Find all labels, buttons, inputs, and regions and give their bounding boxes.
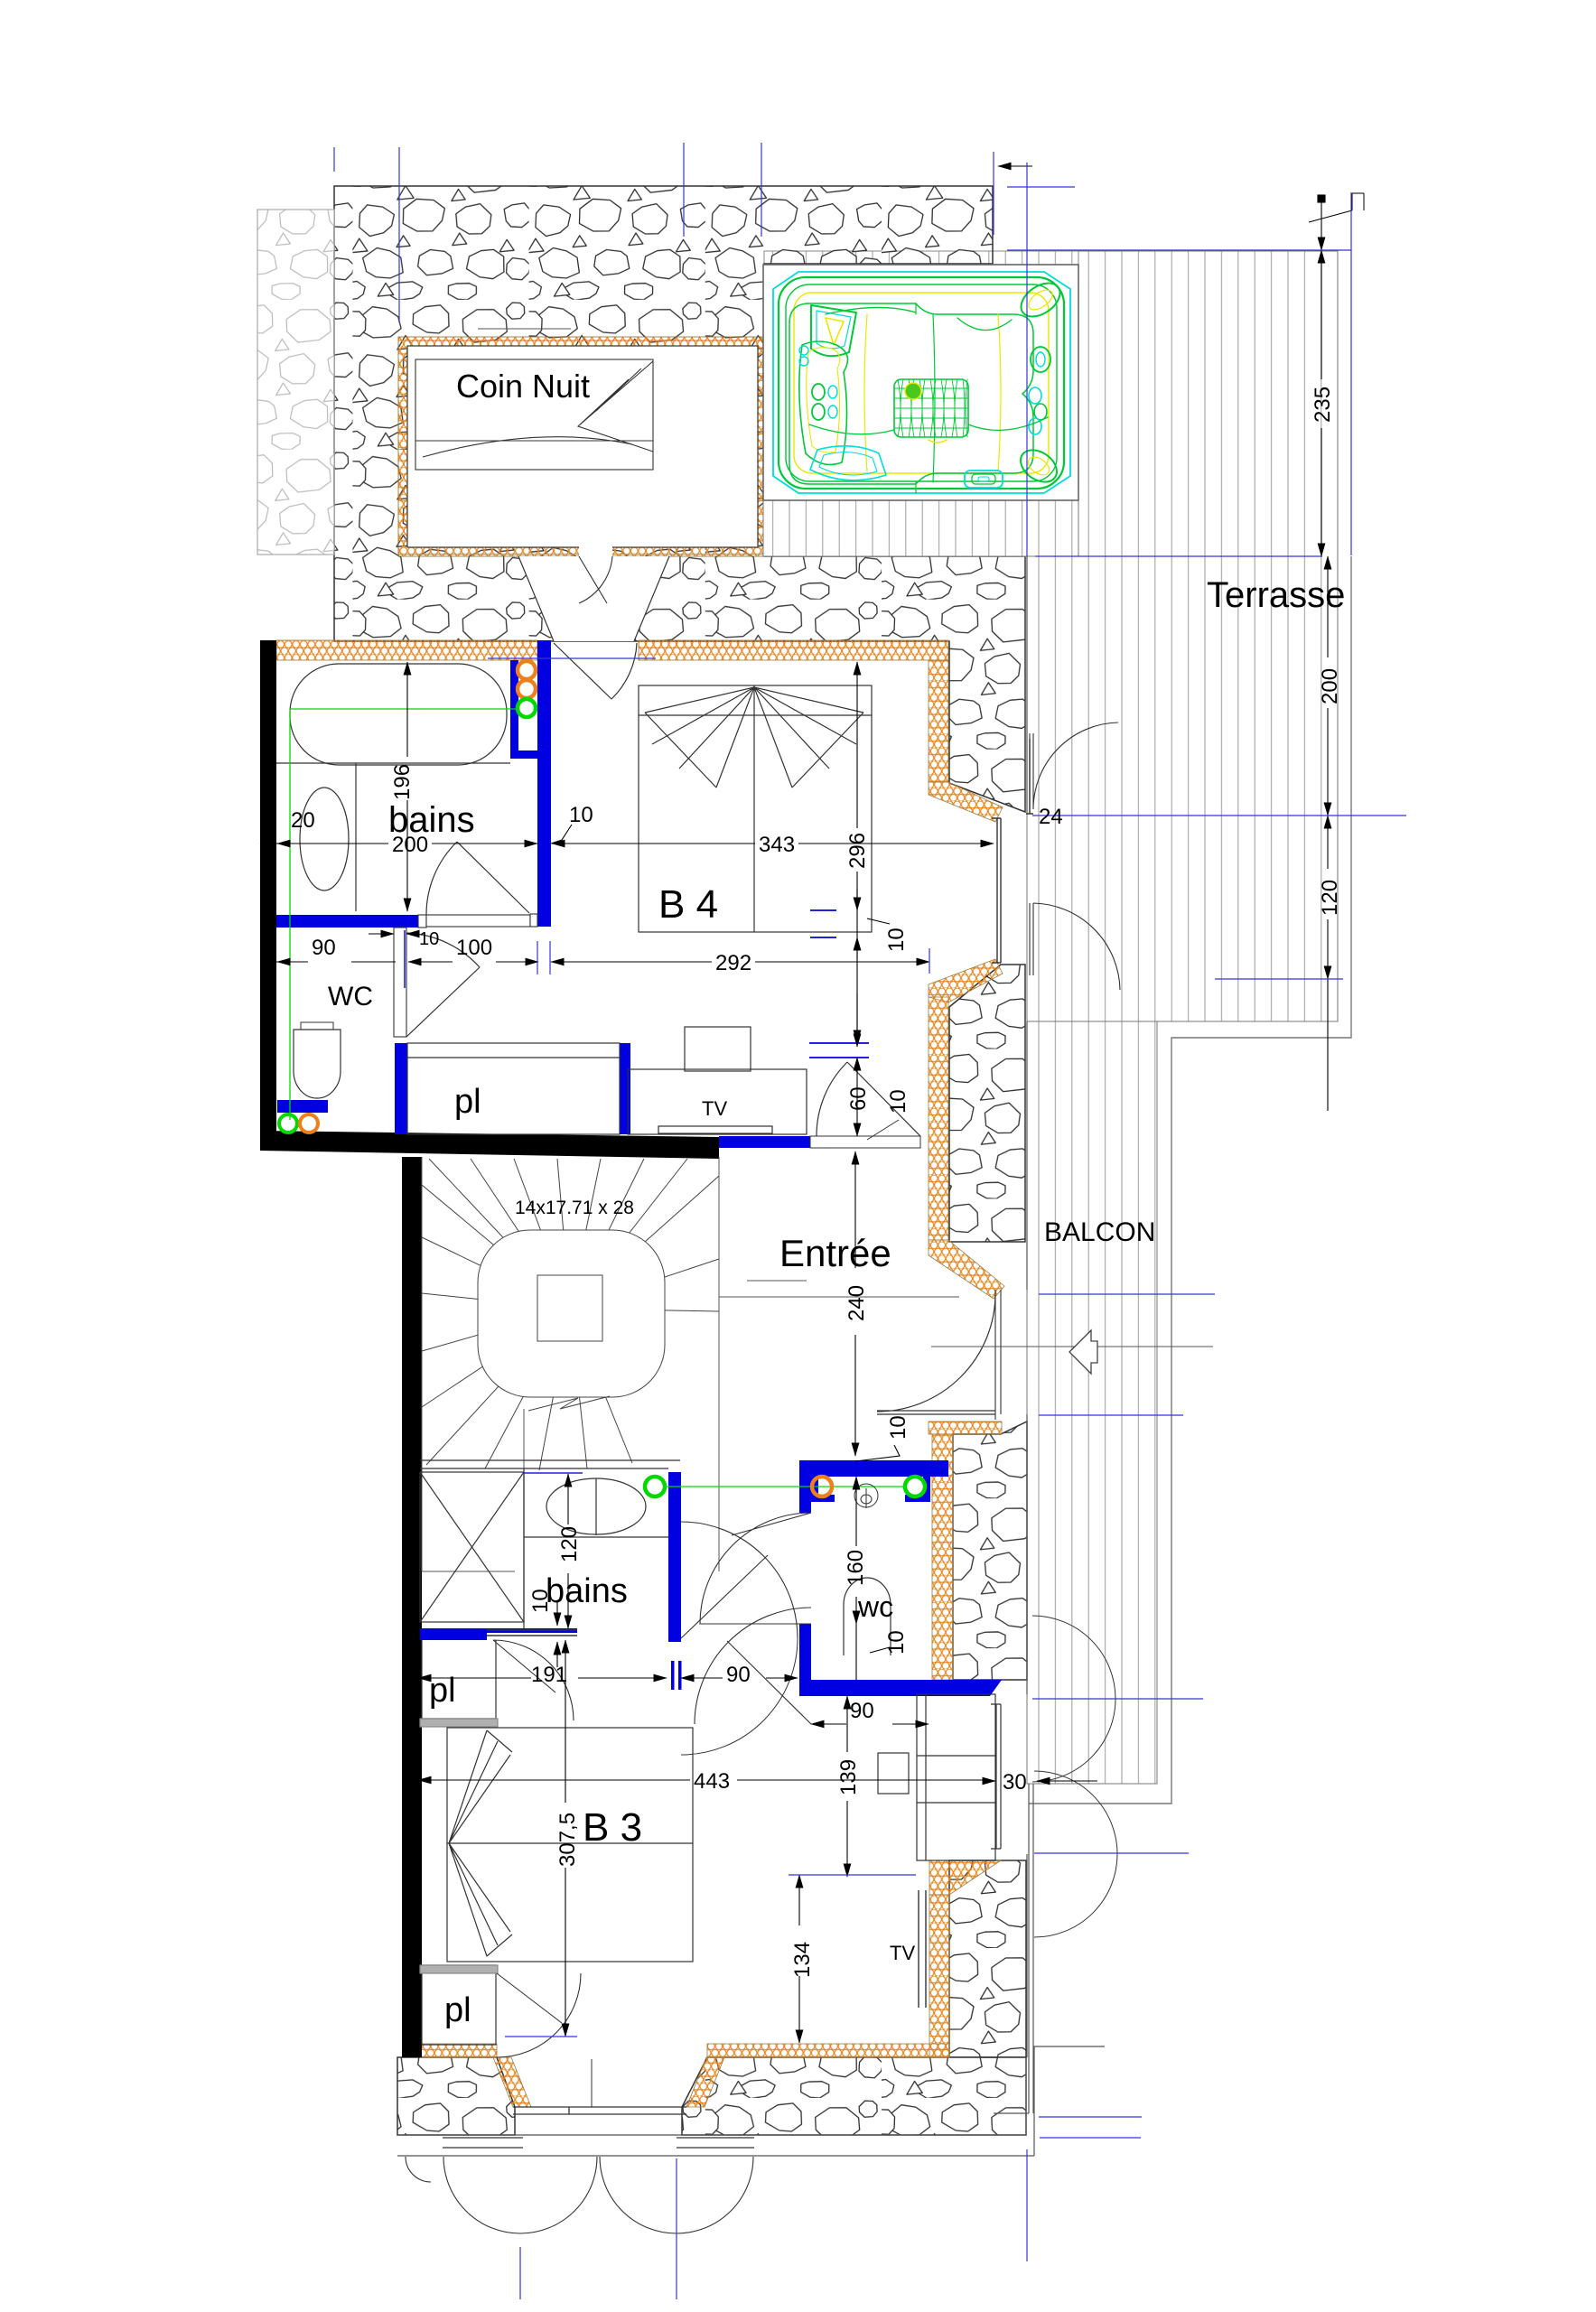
svg-text:TV: TV [890,1942,915,1964]
svg-text:B 3: B 3 [583,1805,642,1850]
svg-text:160: 160 [844,1550,868,1586]
svg-text:10: 10 [884,928,909,952]
svg-text:Entrée: Entrée [779,1232,891,1274]
svg-text:20: 20 [291,808,315,833]
svg-text:pl: pl [444,1991,471,2029]
svg-text:343: 343 [759,833,795,857]
svg-text:90: 90 [312,936,336,960]
svg-text:10: 10 [569,803,593,827]
svg-text:10: 10 [884,1630,909,1655]
svg-text:10: 10 [419,929,439,949]
svg-text:60: 60 [846,1086,871,1111]
svg-text:B 4: B 4 [658,882,718,927]
svg-text:Coin Nuit: Coin Nuit [456,368,590,405]
svg-text:wc: wc [857,1590,893,1623]
svg-text:90: 90 [726,1663,751,1687]
svg-text:196: 196 [390,764,415,800]
svg-text:24: 24 [1039,805,1063,829]
svg-text:292: 292 [715,951,751,975]
svg-text:10: 10 [886,1415,910,1440]
svg-text:BALCON: BALCON [1044,1217,1155,1247]
svg-text:120: 120 [1318,880,1342,916]
svg-text:WC: WC [328,982,373,1011]
svg-text:134: 134 [790,1942,815,1978]
svg-text:443: 443 [694,1769,730,1794]
svg-text:14x17.71 x 28: 14x17.71 x 28 [515,1198,634,1218]
svg-text:200: 200 [392,833,428,857]
svg-text:139: 139 [836,1759,861,1795]
svg-text:pl: pl [454,1083,481,1121]
svg-text:pl: pl [429,1672,456,1710]
svg-text:bains: bains [546,1572,628,1610]
svg-text:100: 100 [456,936,492,960]
svg-text:10: 10 [528,1589,553,1613]
svg-text:TV: TV [702,1097,727,1120]
svg-text:235: 235 [1311,387,1335,423]
svg-text:10: 10 [886,1089,910,1114]
svg-text:30: 30 [1003,1770,1027,1795]
svg-text:Terrasse: Terrasse [1207,575,1345,615]
svg-text:120: 120 [557,1526,582,1562]
svg-text:90: 90 [850,1699,874,1723]
svg-text:240: 240 [845,1285,869,1321]
svg-text:200: 200 [1318,668,1342,704]
svg-text:307,5: 307,5 [555,1813,580,1867]
svg-text:191: 191 [531,1663,567,1687]
svg-text:296: 296 [845,833,870,869]
